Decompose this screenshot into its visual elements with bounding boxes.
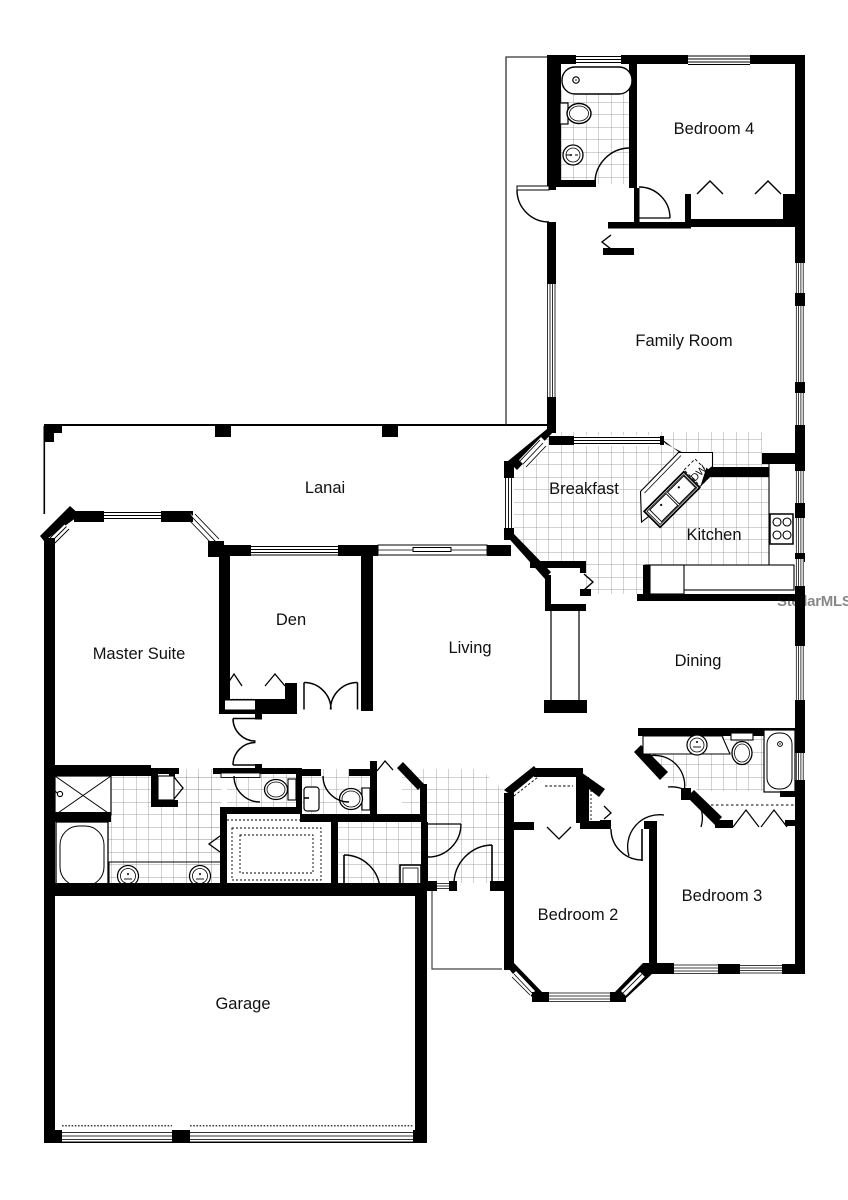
svg-text:Lanai: Lanai [305,479,345,497]
svg-text:Master Suite: Master Suite [93,645,186,663]
svg-text:Bedroom 2: Bedroom 2 [538,906,619,924]
svg-text:Kitchen: Kitchen [686,526,741,544]
svg-text:Den: Den [276,611,306,629]
svg-text:Breakfast: Breakfast [549,480,619,498]
svg-text:Garage: Garage [215,995,270,1013]
svg-text:StellarMLS: StellarMLS [777,593,848,610]
svg-text:Family Room: Family Room [635,332,732,350]
svg-text:Living: Living [448,639,491,657]
svg-text:Bedroom 3: Bedroom 3 [682,887,763,905]
svg-text:Bedroom 4: Bedroom 4 [674,120,755,138]
svg-text:Dining: Dining [675,652,722,670]
